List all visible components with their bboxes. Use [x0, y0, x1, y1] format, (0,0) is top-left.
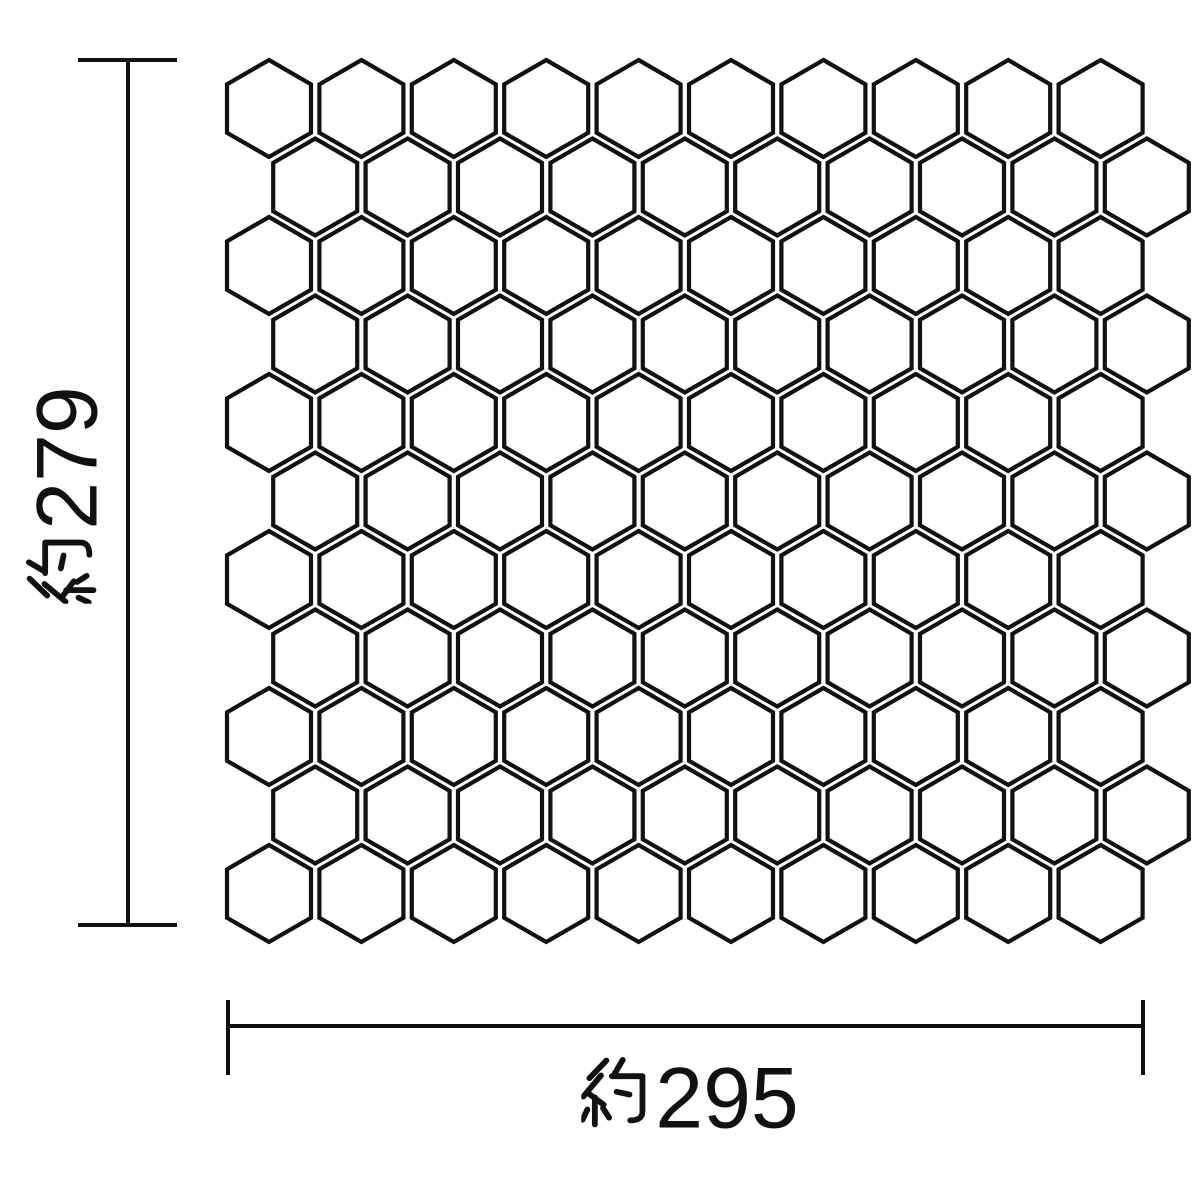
- hex-tile: [874, 531, 958, 628]
- hex-tile: [319, 845, 403, 942]
- hex-tile: [366, 767, 450, 864]
- hex-tile: [412, 374, 496, 471]
- hex-tile: [550, 139, 634, 236]
- hex-tile: [643, 610, 727, 707]
- hex-tile: [781, 845, 865, 942]
- hex-tile: [366, 139, 450, 236]
- hex-tile: [1012, 610, 1096, 707]
- hex-tile: [227, 688, 311, 785]
- hex-tile: [319, 217, 403, 314]
- hex-tile: [1012, 767, 1096, 864]
- hex-tile: [366, 610, 450, 707]
- hex-tile: [458, 296, 542, 393]
- hex-tile: [319, 60, 403, 157]
- height-dimension-value: 279: [25, 386, 111, 530]
- hex-tile: [1059, 531, 1143, 628]
- hex-tile: [227, 531, 311, 628]
- hex-tile: [874, 60, 958, 157]
- hex-tile: [735, 296, 819, 393]
- hex-tile: [504, 688, 588, 785]
- hex-tile: [550, 610, 634, 707]
- hex-tile: [597, 374, 681, 471]
- hex-tile: [412, 60, 496, 157]
- hex-tile: [920, 767, 1004, 864]
- hex-tile: [1105, 767, 1189, 864]
- hex-tile: [920, 453, 1004, 550]
- diagram-canvas: 279 295: [0, 0, 1200, 1200]
- hex-tile: [920, 296, 1004, 393]
- hex-tile: [366, 296, 450, 393]
- hex-tile: [597, 531, 681, 628]
- hex-tile: [597, 217, 681, 314]
- hex-tile: [504, 217, 588, 314]
- hex-tile: [1059, 374, 1143, 471]
- hex-tile: [273, 296, 357, 393]
- hex-tile: [550, 296, 634, 393]
- hex-tile: [828, 296, 912, 393]
- hex-tile: [227, 60, 311, 157]
- yaku-kanji-icon: [24, 536, 100, 604]
- hex-tile: [643, 767, 727, 864]
- hex-tile: [458, 610, 542, 707]
- hex-tile: [689, 531, 773, 628]
- hex-tile: [735, 139, 819, 236]
- hex-tile: [966, 845, 1050, 942]
- hex-tile: [781, 531, 865, 628]
- hex-tile: [874, 845, 958, 942]
- hex-mosaic-dimension-diagram: [0, 0, 1200, 1200]
- hex-tile: [643, 139, 727, 236]
- hex-tile: [735, 453, 819, 550]
- hex-tile: [273, 453, 357, 550]
- hex-tile: [1012, 139, 1096, 236]
- hex-tile: [1012, 296, 1096, 393]
- hex-tile: [689, 374, 773, 471]
- hex-tile: [550, 453, 634, 550]
- hex-tile: [412, 531, 496, 628]
- hex-tile: [1059, 60, 1143, 157]
- hex-grid: [227, 60, 1189, 942]
- hex-tile: [1059, 688, 1143, 785]
- width-dimension-value: 295: [655, 1056, 799, 1142]
- hex-tile: [504, 374, 588, 471]
- hex-tile: [273, 139, 357, 236]
- hex-tile: [781, 60, 865, 157]
- yaku-kanji-icon: [581, 1055, 649, 1131]
- hex-tile: [597, 60, 681, 157]
- hex-tile: [966, 60, 1050, 157]
- hex-tile: [1059, 217, 1143, 314]
- hex-tile: [458, 139, 542, 236]
- hex-tile: [1059, 845, 1143, 942]
- hex-tile: [689, 845, 773, 942]
- hex-tile: [597, 688, 681, 785]
- hex-tile: [597, 845, 681, 942]
- hex-tile: [1012, 453, 1096, 550]
- hex-tile: [735, 767, 819, 864]
- hex-tile: [1105, 296, 1189, 393]
- hex-tile: [735, 610, 819, 707]
- hex-tile: [920, 139, 1004, 236]
- hex-tile: [1105, 453, 1189, 550]
- hex-tile: [781, 374, 865, 471]
- hex-tile: [504, 531, 588, 628]
- hex-tile: [412, 217, 496, 314]
- hex-tile: [781, 688, 865, 785]
- hex-tile: [874, 374, 958, 471]
- hex-tile: [874, 217, 958, 314]
- hex-tile: [828, 767, 912, 864]
- hex-tile: [966, 217, 1050, 314]
- hex-tile: [504, 845, 588, 942]
- hex-tile: [643, 453, 727, 550]
- hex-tile: [1105, 139, 1189, 236]
- hex-tile: [227, 845, 311, 942]
- hex-tile: [319, 688, 403, 785]
- hex-tile: [966, 531, 1050, 628]
- height-dimension-label: 279: [24, 386, 111, 604]
- hex-tile: [966, 688, 1050, 785]
- hex-tile: [689, 60, 773, 157]
- hex-tile: [550, 767, 634, 864]
- hex-tile: [966, 374, 1050, 471]
- hex-tile: [828, 139, 912, 236]
- hex-tile: [781, 217, 865, 314]
- width-dimension-label: 295: [581, 1055, 799, 1142]
- hex-tile: [227, 374, 311, 471]
- hex-tile: [920, 610, 1004, 707]
- hex-tile: [874, 688, 958, 785]
- hex-tile: [273, 610, 357, 707]
- hex-tile: [828, 453, 912, 550]
- hex-tile: [458, 767, 542, 864]
- hex-tile: [412, 845, 496, 942]
- hex-tile: [504, 60, 588, 157]
- hex-tile: [643, 296, 727, 393]
- hex-tile: [458, 453, 542, 550]
- hex-tile: [227, 217, 311, 314]
- hex-tile: [828, 610, 912, 707]
- hex-tile: [412, 688, 496, 785]
- hex-tile: [689, 688, 773, 785]
- hex-tile: [366, 453, 450, 550]
- hex-tile: [273, 767, 357, 864]
- hex-tile: [1105, 610, 1189, 707]
- hex-tile: [319, 374, 403, 471]
- hex-tile: [319, 531, 403, 628]
- hex-tile: [689, 217, 773, 314]
